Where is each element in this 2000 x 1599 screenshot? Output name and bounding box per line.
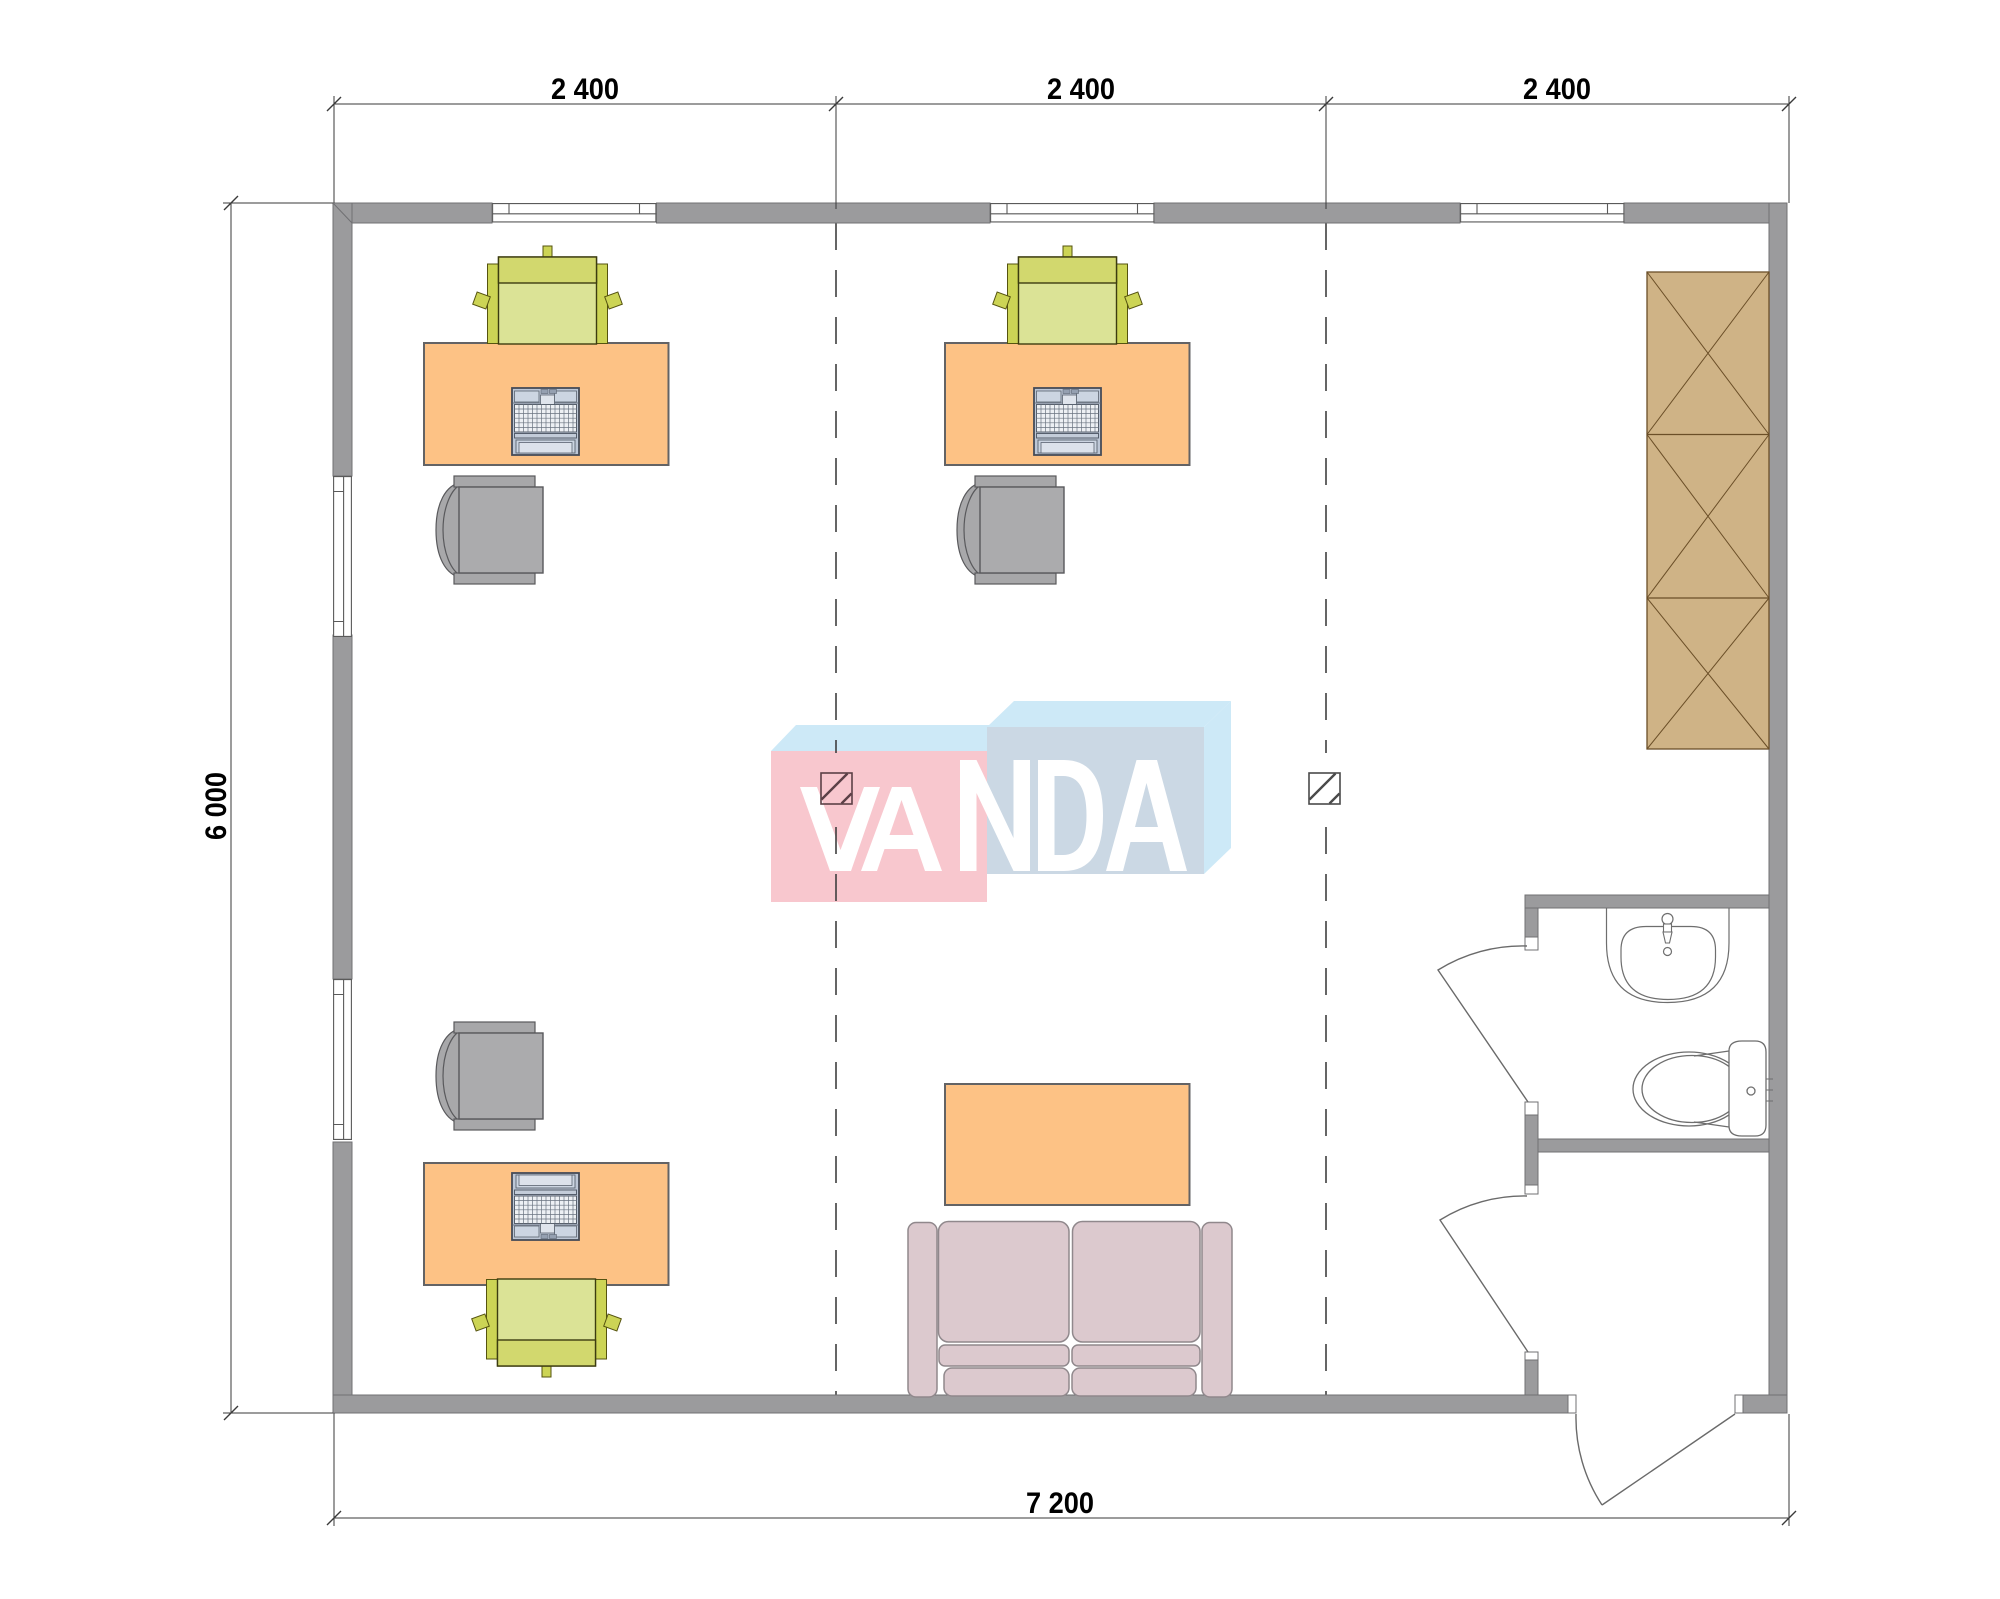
svg-text:2 400: 2 400	[551, 73, 619, 106]
svg-text:2 400: 2 400	[1047, 73, 1115, 106]
svg-text:7 200: 7 200	[1026, 1487, 1094, 1520]
svg-text:6 000: 6 000	[200, 772, 233, 840]
svg-text:2 400: 2 400	[1523, 73, 1591, 106]
